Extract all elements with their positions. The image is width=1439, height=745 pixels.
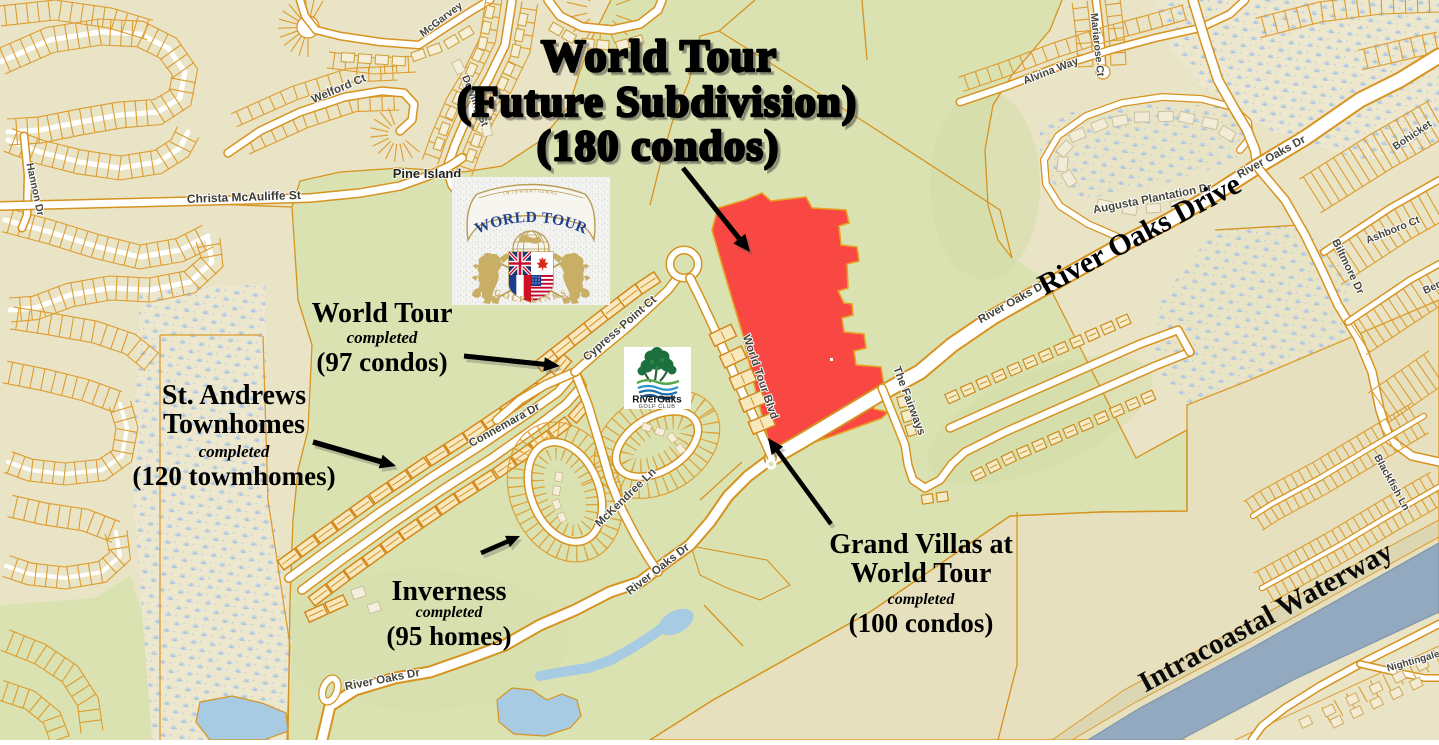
svg-text:completed: completed (416, 604, 484, 621)
svg-text:Pine Island: Pine Island (393, 166, 462, 181)
svg-text:Inverness: Inverness (391, 576, 506, 607)
svg-text:(Future Subdivision): (Future Subdivision) (457, 79, 857, 126)
svg-text:(95 homes): (95 homes) (386, 621, 511, 651)
svg-text:completed: completed (888, 591, 956, 608)
svg-text:Grand Villas at: Grand Villas at (829, 529, 1013, 560)
svg-text:(180 condos): (180 condos) (537, 123, 780, 170)
svg-text:St. Andrews: St. Andrews (162, 380, 306, 411)
svg-text:completed: completed (347, 328, 418, 347)
svg-text:(97 condos): (97 condos) (316, 347, 447, 377)
svg-text:World Tour: World Tour (541, 31, 777, 81)
svg-text:completed: completed (199, 442, 270, 461)
svg-text:World Tour: World Tour (851, 558, 992, 589)
svg-text:GOLF CLUB: GOLF CLUB (638, 404, 675, 410)
svg-text:Townhomes: Townhomes (163, 409, 305, 440)
svg-text:(120 towmhomes): (120 towmhomes) (132, 461, 335, 491)
svg-text:World Tour: World Tour (312, 298, 453, 329)
svg-text:(100 condos): (100 condos) (849, 608, 994, 638)
